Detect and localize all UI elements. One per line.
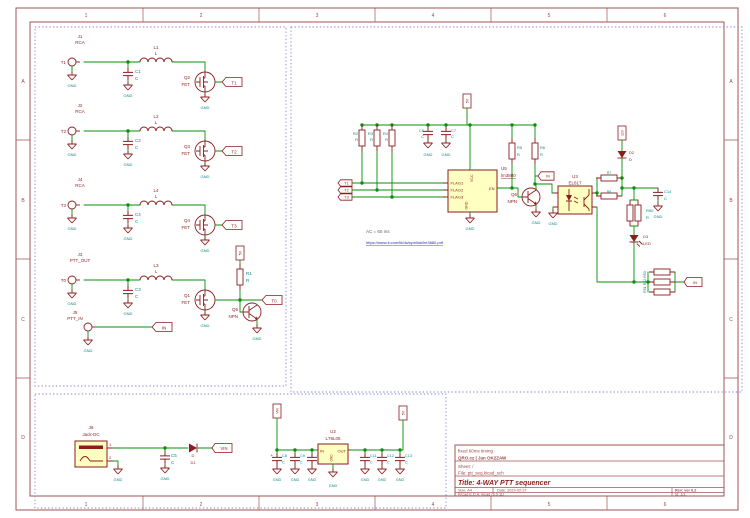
cap-value[interactable]: C bbox=[135, 219, 139, 224]
c6-value[interactable]: C bbox=[421, 134, 424, 139]
ic-pin-flag1: FLAG1 bbox=[451, 181, 464, 186]
ic-pin-en: EN bbox=[489, 186, 495, 191]
cap-value[interactable]: C bbox=[300, 461, 303, 465]
net-label-t1[interactable]: T1 bbox=[344, 182, 348, 186]
d1-value[interactable]: D bbox=[192, 453, 195, 458]
capacitor-symbol[interactable] bbox=[123, 68, 133, 80]
ruler-col-top: 3 bbox=[316, 13, 319, 19]
gnd-label: GND bbox=[378, 478, 387, 482]
gnd-label: GND bbox=[201, 248, 210, 253]
gnd-symbol[interactable] bbox=[201, 94, 210, 103]
gnd-label: GND bbox=[201, 105, 210, 110]
inductor-symbol[interactable] bbox=[140, 276, 172, 280]
ruler-col-bottom: 6 bbox=[664, 502, 667, 508]
r3-value[interactable]: R bbox=[370, 137, 373, 142]
polarized-plus: + bbox=[270, 453, 273, 458]
fet-value[interactable]: FET bbox=[182, 82, 191, 87]
gnd-label: GND bbox=[424, 152, 433, 157]
net-label-in-tap[interactable]: IN bbox=[546, 175, 550, 179]
gnd-label: GND bbox=[329, 484, 338, 488]
net-label-input[interactable]: T0 bbox=[61, 278, 67, 283]
ruler-row-left: C bbox=[21, 317, 25, 323]
gnd-symbol[interactable] bbox=[466, 215, 475, 224]
fet-value[interactable]: FET bbox=[182, 300, 191, 305]
jack-body[interactable] bbox=[75, 441, 107, 467]
fet-symbol[interactable] bbox=[195, 215, 215, 235]
power-flag-5v[interactable]: 5V bbox=[239, 250, 243, 255]
sheet-field: Sheet: / bbox=[458, 464, 474, 469]
cap-ref[interactable]: C12 bbox=[387, 454, 394, 458]
ic-pin-flag3: FLAG3 bbox=[451, 195, 464, 200]
inductor-symbol[interactable] bbox=[140, 58, 172, 62]
d2-ref[interactable]: D2 bbox=[629, 150, 635, 155]
cap-ref[interactable]: C11 bbox=[370, 454, 377, 458]
gnd-symbol[interactable] bbox=[124, 300, 133, 309]
net-label-t2[interactable]: T2 bbox=[344, 189, 348, 193]
net-label-input[interactable]: T1 bbox=[61, 60, 67, 65]
gnd-symbol[interactable] bbox=[201, 163, 210, 172]
c14-value[interactable]: C bbox=[664, 196, 667, 201]
ruler-row-left: B bbox=[21, 198, 25, 204]
gnd-label: GND bbox=[466, 226, 475, 231]
gnd-label: GND bbox=[532, 220, 541, 225]
power-flag-vin[interactable]: VIN bbox=[275, 408, 279, 414]
c5-ref[interactable]: C5 bbox=[171, 453, 177, 458]
net-label-output[interactable]: T2 bbox=[231, 149, 237, 154]
gnd-label: GND bbox=[291, 478, 300, 482]
group-box-inputs[interactable] bbox=[35, 27, 286, 386]
resistor-symbol[interactable] bbox=[374, 125, 380, 151]
ruler-col-top: 4 bbox=[432, 13, 435, 19]
connector-ref[interactable]: J3 bbox=[78, 252, 83, 257]
rca-connector-symbol[interactable] bbox=[84, 323, 96, 331]
r3-ref[interactable]: R3 bbox=[368, 131, 374, 136]
gnd-symbol[interactable] bbox=[442, 140, 451, 149]
group-box-sequencer[interactable] bbox=[291, 27, 742, 392]
fet-symbol[interactable] bbox=[195, 141, 215, 161]
r4-ref[interactable]: R4 bbox=[383, 131, 389, 136]
c5-value[interactable]: C bbox=[171, 460, 175, 465]
sequencer-block[interactable]: 5V R2 R R3 R R4 R C6 C C7 C GND GND T1 T… bbox=[338, 94, 702, 295]
net-label-input[interactable]: T3 bbox=[61, 203, 67, 208]
timing-note: AC = 60 ms bbox=[366, 229, 390, 234]
power-flag-5v[interactable]: 5V bbox=[401, 410, 405, 415]
ic-value-datasheet-link[interactable]: lm3880 bbox=[501, 173, 516, 178]
gnd-label: GND bbox=[396, 478, 405, 482]
net-label-output[interactable]: T0 bbox=[271, 298, 277, 303]
d1-ref[interactable]: D1 bbox=[190, 460, 196, 465]
ic-pin-gnd: GND bbox=[465, 201, 469, 209]
fet-value[interactable]: FET bbox=[182, 151, 191, 156]
frame-inner-border bbox=[30, 22, 724, 496]
gnd-label: GND bbox=[273, 478, 282, 482]
d3-ref[interactable]: D3 bbox=[643, 234, 649, 239]
resistor-symbol[interactable] bbox=[532, 138, 538, 164]
resistor-symbol[interactable] bbox=[509, 138, 515, 164]
capacitor-symbol[interactable] bbox=[123, 211, 133, 223]
ruler-row-right: C bbox=[729, 317, 733, 323]
r50-ref[interactable]: R50 bbox=[646, 208, 654, 213]
capacitor-symbol[interactable] bbox=[441, 127, 451, 139]
rca-connector-symbol[interactable] bbox=[68, 58, 80, 66]
r5-ref[interactable]: R5 bbox=[517, 145, 523, 150]
gnd-symbol[interactable] bbox=[161, 465, 170, 474]
r8-ref[interactable]: R8 bbox=[607, 190, 611, 194]
resistor-symbol[interactable] bbox=[627, 200, 633, 226]
gnd-symbol[interactable] bbox=[124, 225, 133, 234]
resistor-symbol[interactable] bbox=[596, 175, 622, 181]
cap-value[interactable]: C bbox=[135, 76, 139, 81]
c7-ref[interactable]: C7 bbox=[451, 128, 457, 133]
resistor-symbol[interactable] bbox=[649, 269, 675, 275]
stage-3[interactable]: T3 J4 RCA GND C4 C GND L4 L Q4 FET GND T… bbox=[61, 177, 242, 253]
jack-pin1-number: 1 bbox=[109, 442, 112, 447]
connector-value[interactable]: PTT_OUT bbox=[70, 258, 91, 263]
schematic-canvas[interactable]: 1 2 3 4 5 6 1 2 3 4 5 6 A B C D A B C D … bbox=[0, 0, 750, 518]
ind-value[interactable]: L bbox=[155, 194, 158, 199]
npn-symbol[interactable] bbox=[522, 188, 540, 206]
fet-symbol[interactable] bbox=[195, 72, 215, 92]
resistor-symbol[interactable] bbox=[389, 125, 395, 151]
rca-connector-symbol[interactable] bbox=[68, 276, 80, 284]
reg-pin-gnd: GND bbox=[330, 454, 334, 462]
gnd-symbol[interactable] bbox=[68, 215, 77, 224]
gnd-symbol[interactable] bbox=[329, 469, 338, 478]
gnd-symbol[interactable] bbox=[308, 466, 317, 475]
gnd-label: GND bbox=[124, 162, 133, 167]
ic-pin-vcc: VCC bbox=[470, 174, 474, 182]
q6-value[interactable]: NPN bbox=[507, 199, 517, 204]
cap-value[interactable]: C bbox=[387, 461, 390, 465]
r1-value[interactable]: R bbox=[246, 278, 250, 283]
ic-ref[interactable]: U5 bbox=[501, 166, 507, 171]
gnd-label: GND bbox=[161, 476, 170, 481]
gnd-symbol[interactable] bbox=[532, 209, 541, 218]
jack-pin-bar bbox=[79, 446, 103, 450]
r4-value[interactable]: R bbox=[385, 137, 388, 142]
cap-value[interactable]: C bbox=[135, 145, 139, 150]
gnd-label: GND bbox=[253, 336, 262, 341]
fet-ref[interactable]: Q1 bbox=[184, 293, 191, 298]
gnd-symbol[interactable] bbox=[68, 141, 77, 150]
net-label-output[interactable]: T3 bbox=[231, 223, 237, 228]
net-label-input[interactable]: T2 bbox=[61, 129, 67, 134]
ruler-col-bottom: 1 bbox=[85, 502, 88, 508]
gnd-label: GND bbox=[654, 214, 663, 219]
frame-ruler-ticks bbox=[16, 8, 738, 510]
resistor-symbol[interactable] bbox=[649, 279, 675, 285]
resistor-symbol[interactable] bbox=[359, 125, 365, 151]
power-section[interactable]: J6 Jack-DC 1 2 GND C5 C GND D D1 VIN VIN… bbox=[75, 404, 412, 488]
id-field: Id: 1/1 bbox=[675, 493, 686, 497]
ruler-col-top: 6 bbox=[664, 13, 667, 19]
ruler-col-bottom: 3 bbox=[316, 502, 319, 508]
gnd-symbol[interactable] bbox=[124, 151, 133, 160]
gnd-symbol[interactable] bbox=[68, 72, 77, 81]
cap-value[interactable]: C bbox=[282, 461, 285, 465]
ind-value[interactable]: L bbox=[155, 120, 158, 125]
gnd-label: GND bbox=[308, 478, 317, 482]
gnd-symbol[interactable] bbox=[396, 466, 405, 475]
net-label-output[interactable]: T1 bbox=[231, 80, 237, 85]
r7-ref[interactable]: R7 bbox=[607, 171, 611, 175]
fet-ref[interactable]: Q2 bbox=[184, 75, 191, 80]
ind-ref[interactable]: L3 bbox=[153, 263, 159, 268]
c7-value[interactable]: C bbox=[451, 134, 454, 139]
optocoupler-body[interactable] bbox=[558, 186, 592, 214]
rca-connector-symbol[interactable] bbox=[68, 127, 80, 135]
cap-ref[interactable]: C8 bbox=[282, 454, 287, 458]
opto-value[interactable]: EL817 bbox=[568, 181, 582, 186]
capacitor-symbol[interactable] bbox=[123, 286, 133, 298]
capacitor-symbol[interactable] bbox=[123, 137, 133, 149]
gnd-symbol[interactable] bbox=[124, 82, 133, 91]
net-label-in[interactable]: IN bbox=[162, 325, 167, 330]
ind-ref[interactable]: L4 bbox=[153, 188, 159, 193]
ruler-col-top: 2 bbox=[200, 13, 203, 19]
npn-symbol[interactable] bbox=[243, 303, 261, 321]
r1-ref[interactable]: R1 bbox=[246, 271, 252, 276]
c6-ref[interactable]: C6 bbox=[419, 128, 425, 133]
capacitor-symbol[interactable] bbox=[290, 453, 300, 465]
ruler-col-top: 5 bbox=[548, 13, 551, 19]
diode-symbol[interactable] bbox=[618, 151, 627, 158]
cap-ref[interactable]: C4 bbox=[135, 212, 141, 217]
capacitor-symbol[interactable] bbox=[307, 453, 317, 465]
ruler-row-right: D bbox=[729, 435, 733, 441]
gnd-label: GND bbox=[124, 93, 133, 98]
cap-value[interactable]: C bbox=[405, 461, 408, 465]
gnd-symbol[interactable] bbox=[253, 325, 262, 334]
reg-pin-in: IN bbox=[320, 449, 324, 454]
datasheet-url[interactable]: https://www.ti.com/lit/ds/symlink/lm3880… bbox=[366, 240, 444, 245]
gnd-label: GND bbox=[114, 477, 123, 482]
ptt-in-connector[interactable]: J5 PTT_IN GND IN bbox=[67, 310, 172, 353]
gnd-symbol[interactable] bbox=[291, 466, 300, 475]
gnd-symbol[interactable] bbox=[654, 203, 663, 212]
fet-value[interactable]: FET bbox=[182, 225, 191, 230]
title-block[interactable]: fixed 60ms timing QRO.cz | Jan OK2ZAW Sh… bbox=[455, 445, 724, 497]
jack-pin2-number: 2 bbox=[109, 455, 112, 460]
ruler-col-bottom: 4 bbox=[432, 502, 435, 508]
gnd-symbol[interactable] bbox=[378, 466, 387, 475]
tool-field: KiCad E.D.A. kicad (6.0.11) bbox=[458, 493, 505, 497]
cap-ref[interactable]: C2 bbox=[135, 138, 141, 143]
gnd-symbol[interactable] bbox=[201, 312, 210, 321]
capacitor-symbol[interactable] bbox=[377, 453, 387, 465]
gnd-label: GND bbox=[549, 221, 558, 226]
q5-ref[interactable]: Q5 bbox=[232, 307, 239, 312]
cap-ref[interactable]: C13 bbox=[405, 454, 412, 458]
net-label-in-out[interactable]: IN bbox=[693, 280, 697, 285]
r50-value[interactable]: R bbox=[646, 215, 649, 220]
power-flag-12v[interactable]: 12V bbox=[620, 129, 624, 136]
sheet-frame: 1 2 3 4 5 6 1 2 3 4 5 6 A B C D A B C D bbox=[16, 8, 738, 510]
comment-author: QRO.cz | Jan OK2ZAW bbox=[458, 456, 507, 461]
power-flag-5v[interactable]: 5V bbox=[466, 98, 470, 103]
ruler-col-bottom: 2 bbox=[200, 502, 203, 508]
ind-value[interactable]: L bbox=[155, 51, 158, 56]
capacitor-symbol[interactable] bbox=[653, 188, 663, 200]
gnd-label: GND bbox=[442, 152, 451, 157]
connector-ref[interactable]: J1 bbox=[78, 34, 83, 39]
ruler-row-right: B bbox=[729, 198, 733, 204]
file-field: File: ptt_seq.kicad_sch bbox=[458, 471, 504, 476]
gnd-label: GND bbox=[201, 323, 210, 328]
cap-ref[interactable]: C1 bbox=[135, 69, 141, 74]
connector-ref[interactable]: J5 bbox=[73, 310, 78, 315]
net-label-t3[interactable]: T3 bbox=[344, 196, 348, 200]
ic-pin-flag2: FLAG2 bbox=[451, 188, 464, 193]
resistor-symbol[interactable] bbox=[237, 264, 243, 290]
gnd-label: GND bbox=[68, 152, 77, 157]
rca-connector-symbol[interactable] bbox=[68, 201, 80, 209]
gnd-label: GND bbox=[68, 226, 77, 231]
ruler-row-left: A bbox=[21, 79, 25, 85]
reg-pin-out: OUT bbox=[338, 449, 347, 454]
inductor-symbol[interactable] bbox=[140, 127, 172, 131]
r6-ref[interactable]: R6 bbox=[540, 145, 546, 150]
cap-ref[interactable]: C9 bbox=[300, 454, 305, 458]
jack-value[interactable]: Jack-DC bbox=[82, 432, 100, 437]
d3-value[interactable]: LED bbox=[643, 241, 651, 246]
connector-value[interactable]: PTT_IN bbox=[67, 316, 83, 321]
fet-ref[interactable]: Q4 bbox=[184, 218, 191, 223]
d2-value[interactable]: D bbox=[629, 157, 632, 162]
led-symbol[interactable] bbox=[630, 235, 643, 247]
gnd-symbol[interactable] bbox=[84, 337, 93, 346]
gnd-symbol[interactable] bbox=[201, 237, 210, 246]
net-label-vin[interactable]: VIN bbox=[221, 446, 228, 451]
capacitor-symbol[interactable] bbox=[423, 127, 433, 139]
jack-ref[interactable]: J6 bbox=[89, 425, 94, 430]
gnd-label: GND bbox=[68, 83, 77, 88]
diode-symbol[interactable] bbox=[189, 444, 197, 453]
ruler-row-right: A bbox=[729, 79, 733, 85]
q5-value[interactable]: NPN bbox=[228, 314, 238, 319]
opto-ref[interactable]: U3 bbox=[572, 174, 578, 179]
ruler-col-bottom: 5 bbox=[548, 502, 551, 508]
connector-value[interactable]: RCA bbox=[75, 183, 85, 188]
cap-value[interactable]: C bbox=[370, 461, 373, 465]
ruler-col-top: 1 bbox=[85, 13, 88, 19]
ind-ref[interactable]: L1 bbox=[153, 45, 159, 50]
gnd-symbol[interactable] bbox=[549, 210, 558, 219]
capacitor-symbol[interactable] bbox=[395, 453, 405, 465]
gnd-label: GND bbox=[68, 301, 77, 306]
connector-ref[interactable]: J2 bbox=[78, 103, 83, 108]
capacitor-symbol[interactable] bbox=[160, 452, 170, 464]
gnd-label: GND bbox=[124, 311, 133, 316]
resistor-symbol[interactable] bbox=[635, 200, 641, 226]
q6-ref[interactable]: Q6 bbox=[511, 192, 518, 197]
r2-value[interactable]: R bbox=[355, 137, 358, 142]
cap-ref[interactable]: C3 bbox=[135, 287, 141, 292]
fet-ref[interactable]: Q3 bbox=[184, 144, 191, 149]
r2-ref[interactable]: R2 bbox=[353, 131, 359, 136]
c14-ref[interactable]: C14 bbox=[664, 189, 672, 194]
fet-symbol[interactable] bbox=[195, 290, 215, 310]
gnd-symbol[interactable] bbox=[68, 290, 77, 299]
connector-value[interactable]: RCA bbox=[75, 109, 85, 114]
r5-value[interactable]: R bbox=[517, 152, 520, 157]
regulator-ref[interactable]: U2 bbox=[330, 429, 336, 434]
gnd-symbol[interactable] bbox=[273, 466, 282, 475]
ruler-row-left: D bbox=[21, 435, 25, 441]
regulator-value[interactable]: L78L05 bbox=[325, 436, 341, 441]
r-cluster-refs[interactable]: R51 R52 R53 bbox=[643, 271, 647, 293]
gnd-label: GND bbox=[361, 478, 370, 482]
connector-ref[interactable]: J4 bbox=[78, 177, 83, 182]
connector-value[interactable]: RCA bbox=[75, 40, 85, 45]
stage-2[interactable]: T2 J2 RCA GND C2 C GND L2 L Q3 FET GND T… bbox=[61, 103, 242, 179]
comment-timing: fixed 60ms timing bbox=[458, 449, 494, 454]
stage-1[interactable]: T1 J1 RCA GND C1 C GND L1 L Q2 FET GND T… bbox=[61, 34, 242, 110]
ind-ref[interactable]: L2 bbox=[153, 114, 159, 119]
gnd-symbol[interactable] bbox=[424, 140, 433, 149]
cap-value[interactable]: C bbox=[135, 294, 139, 299]
gnd-label: GND bbox=[201, 174, 210, 179]
frame-outer-border bbox=[16, 8, 738, 510]
gnd-label: GND bbox=[124, 236, 133, 241]
r6-value[interactable]: R bbox=[540, 152, 543, 157]
gnd-label: GND bbox=[84, 348, 93, 353]
inductor-symbol[interactable] bbox=[140, 201, 172, 205]
capacitor-symbol[interactable] bbox=[272, 453, 282, 465]
ind-value[interactable]: L bbox=[155, 269, 158, 274]
gnd-symbol[interactable] bbox=[114, 466, 123, 475]
resistor-symbol[interactable] bbox=[649, 289, 675, 295]
gnd-symbol[interactable] bbox=[361, 466, 370, 475]
capacitor-symbol[interactable] bbox=[360, 453, 370, 465]
sheet-title: Title: 4-WAY PTT sequencer bbox=[458, 480, 551, 487]
